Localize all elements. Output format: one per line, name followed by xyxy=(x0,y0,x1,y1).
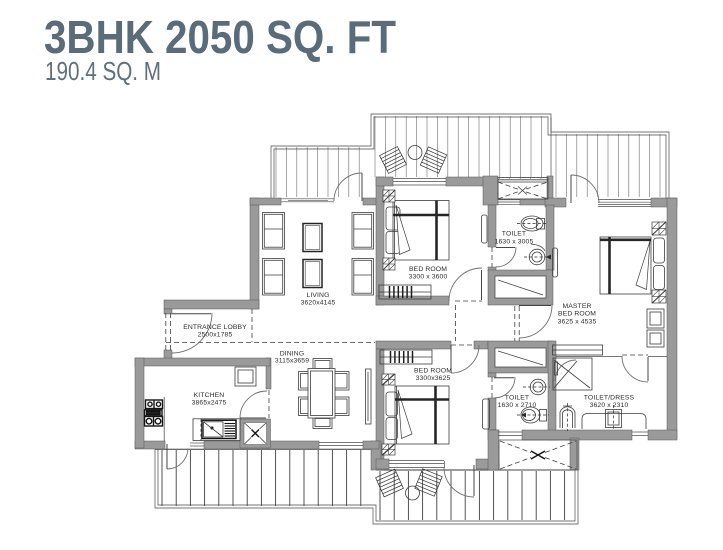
svg-text:190.4 SQ. M: 190.4 SQ. M xyxy=(45,56,161,86)
svg-text:3620x4145: 3620x4145 xyxy=(301,300,336,307)
svg-text:2500x1785: 2500x1785 xyxy=(198,331,233,338)
svg-text:3300 x 3600: 3300 x 3600 xyxy=(409,274,448,281)
svg-text:3620 x 2310: 3620 x 2310 xyxy=(590,402,629,409)
svg-text:KITCHEN: KITCHEN xyxy=(194,392,225,399)
svg-text:BED ROOM: BED ROOM xyxy=(558,311,596,318)
svg-text:TOILET: TOILET xyxy=(502,231,526,238)
svg-text:BED ROOM: BED ROOM xyxy=(409,266,447,273)
svg-text:3300x3625: 3300x3625 xyxy=(416,375,451,382)
svg-text:3865x2475: 3865x2475 xyxy=(192,399,227,406)
svg-text:BED ROOM: BED ROOM xyxy=(414,368,452,375)
svg-text:TOILET/DRESS: TOILET/DRESS xyxy=(584,395,635,402)
svg-text:DINING: DINING xyxy=(280,350,305,357)
svg-text:3625 x 4535: 3625 x 4535 xyxy=(558,318,597,325)
svg-text:3115x3659: 3115x3659 xyxy=(275,358,309,365)
svg-text:1630 x 2710: 1630 x 2710 xyxy=(498,402,537,409)
svg-text:TOILET: TOILET xyxy=(505,395,529,402)
svg-text:1630 x 3005: 1630 x 3005 xyxy=(495,238,534,245)
svg-text:LIVING: LIVING xyxy=(306,292,329,299)
svg-text:ENTRANCE LOBBY: ENTRANCE LOBBY xyxy=(183,324,247,331)
svg-text:MASTER: MASTER xyxy=(562,303,591,310)
